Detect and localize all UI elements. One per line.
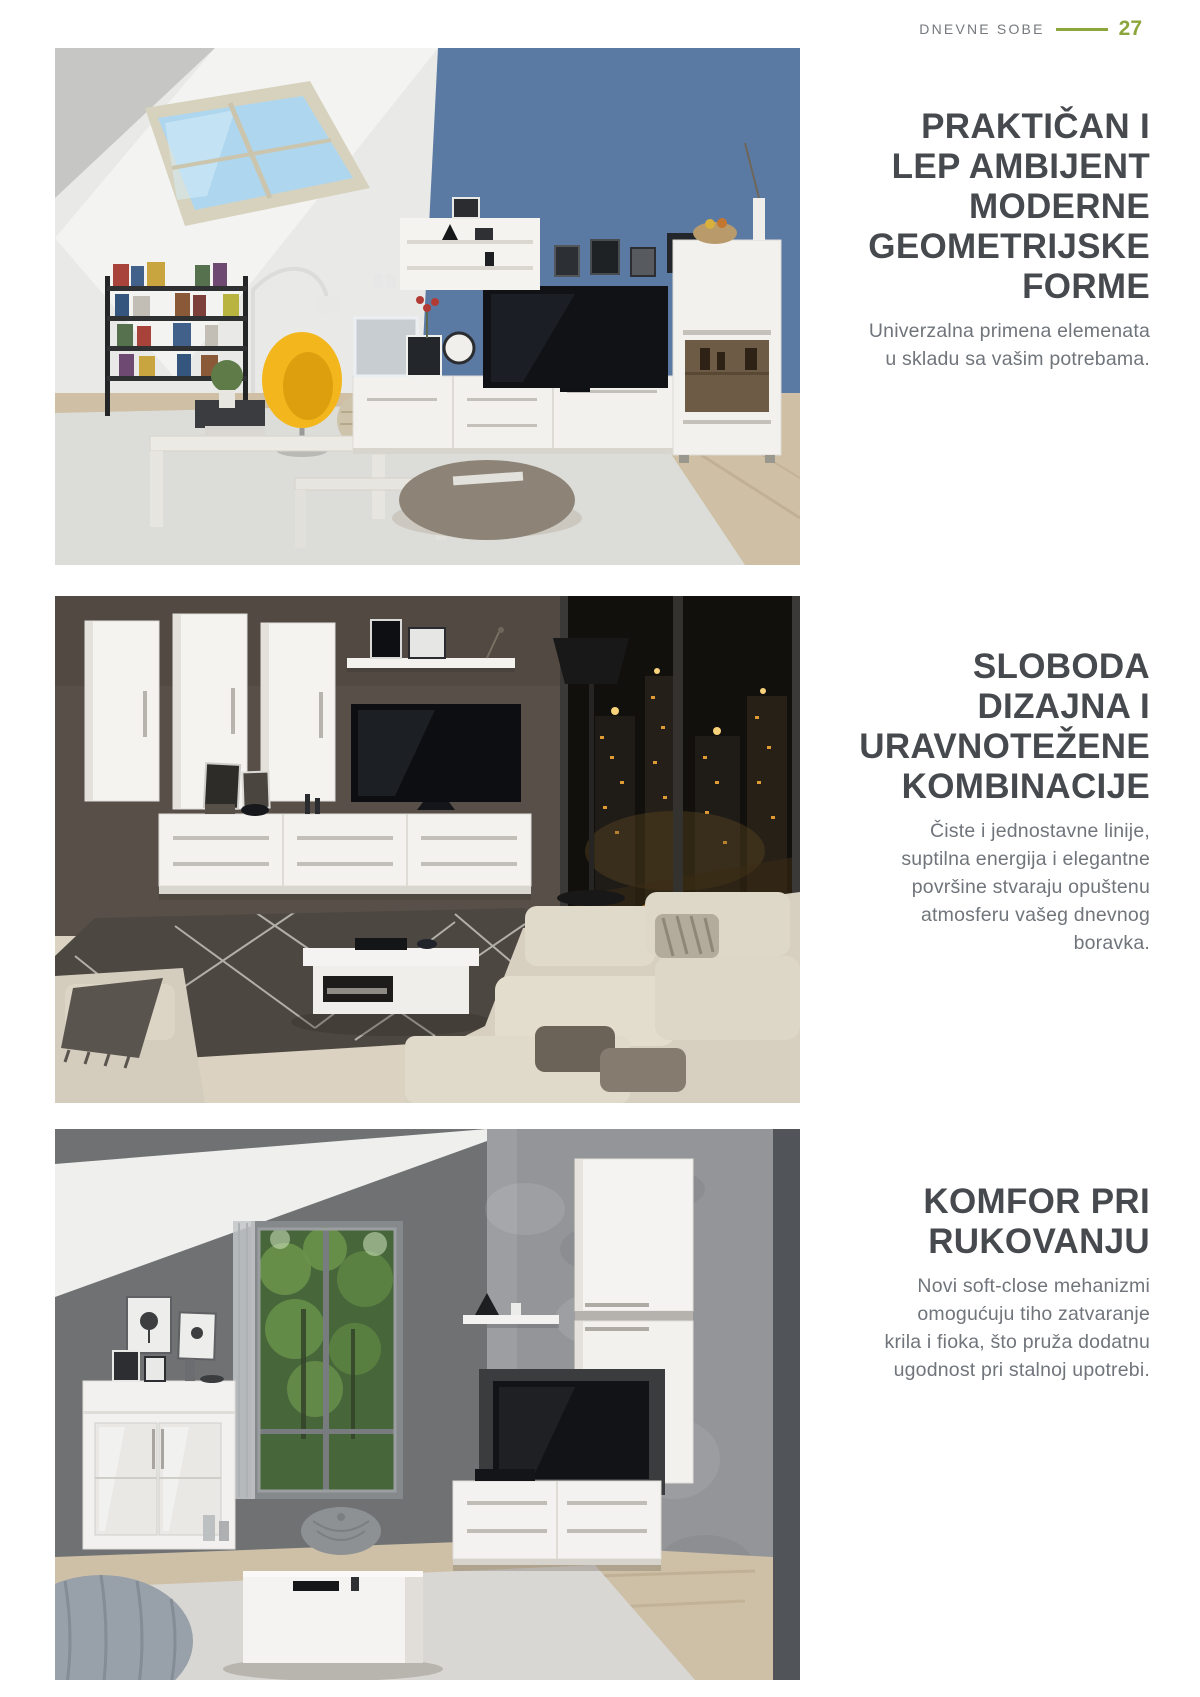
- heading-line: PRAKTIČAN I: [780, 107, 1150, 147]
- section-label: DNEVNE SOBE: [919, 21, 1044, 37]
- body-line: Čiste i jednostavne linije,: [780, 817, 1150, 845]
- page-number: 27: [1119, 17, 1142, 41]
- tv-bench: [453, 1469, 661, 1571]
- section-body: Novi soft-close mehanizmi omogućuju tiho…: [780, 1272, 1150, 1384]
- living-room-photo-2: [55, 596, 800, 1103]
- television: [351, 704, 521, 810]
- heading-line: DIZAJNA I: [780, 687, 1150, 727]
- body-line: omogućuju tiho zatvaranje: [780, 1300, 1150, 1328]
- knit-pouf: [301, 1507, 381, 1555]
- body-line: krila i fioka, što pruža dodatnu: [780, 1328, 1150, 1356]
- header-divider-line: [1056, 28, 1108, 31]
- heading-line: GEOMETRIJSKE: [780, 227, 1150, 267]
- heading-line: RUKOVANJU: [780, 1222, 1150, 1262]
- display-cabinet: [673, 240, 781, 463]
- body-line: ugodnost pri stalnoj upotrebi.: [780, 1356, 1150, 1384]
- coffee-table: [291, 938, 491, 1036]
- body-line: u skladu sa vašim potrebama.: [780, 345, 1150, 373]
- living-room-photo-1: [55, 48, 800, 565]
- section-body: Univerzalna primena elemenata u skladu s…: [780, 317, 1150, 373]
- striped-pillow: [655, 914, 719, 958]
- heading-line: FORME: [780, 267, 1150, 307]
- living-room-photo-3: [55, 1129, 800, 1680]
- curtain: [233, 1221, 255, 1499]
- section-body: Čiste i jednostavne linije, suptilna ene…: [780, 817, 1150, 957]
- body-line: boravka.: [780, 929, 1150, 957]
- heading-line: KOMFOR PRI: [780, 1182, 1150, 1222]
- heading-line: MODERNE: [780, 187, 1150, 227]
- catalog-page: DNEVNE SOBE 27: [0, 0, 1200, 1697]
- body-line: suptilna energija i elegantne: [780, 845, 1150, 873]
- section-text-3: KOMFOR PRI RUKOVANJU Novi soft-close meh…: [780, 1182, 1150, 1384]
- section-heading: PRAKTIČAN I LEP AMBIJENT MODERNE GEOMETR…: [780, 107, 1150, 307]
- body-line: površine stvaraju opuštenu: [780, 873, 1150, 901]
- section-text-2: SLOBODA DIZAJNA I URAVNOTEŽENE KOMBINACI…: [780, 647, 1150, 957]
- body-line: atmosferu vašeg dnevnog: [780, 901, 1150, 929]
- page-header: DNEVNE SOBE 27: [919, 17, 1142, 41]
- heading-line: SLOBODA: [780, 647, 1150, 687]
- heading-line: LEP AMBIJENT: [780, 147, 1150, 187]
- body-line: Novi soft-close mehanizmi: [780, 1272, 1150, 1300]
- heading-line: KOMBINACIJE: [780, 767, 1150, 807]
- section-heading: SLOBODA DIZAJNA I URAVNOTEŽENE KOMBINACI…: [780, 647, 1150, 807]
- section-heading: KOMFOR PRI RUKOVANJU: [780, 1182, 1150, 1262]
- heading-line: URAVNOTEŽENE: [780, 727, 1150, 767]
- coffee-table: [223, 1571, 443, 1680]
- body-line: Univerzalna primena elemenata: [780, 317, 1150, 345]
- forest-window: [251, 1221, 403, 1499]
- section-text-1: PRAKTIČAN I LEP AMBIJENT MODERNE GEOMETR…: [780, 107, 1150, 373]
- armchair-with-throw: [55, 968, 205, 1103]
- television: [483, 286, 668, 392]
